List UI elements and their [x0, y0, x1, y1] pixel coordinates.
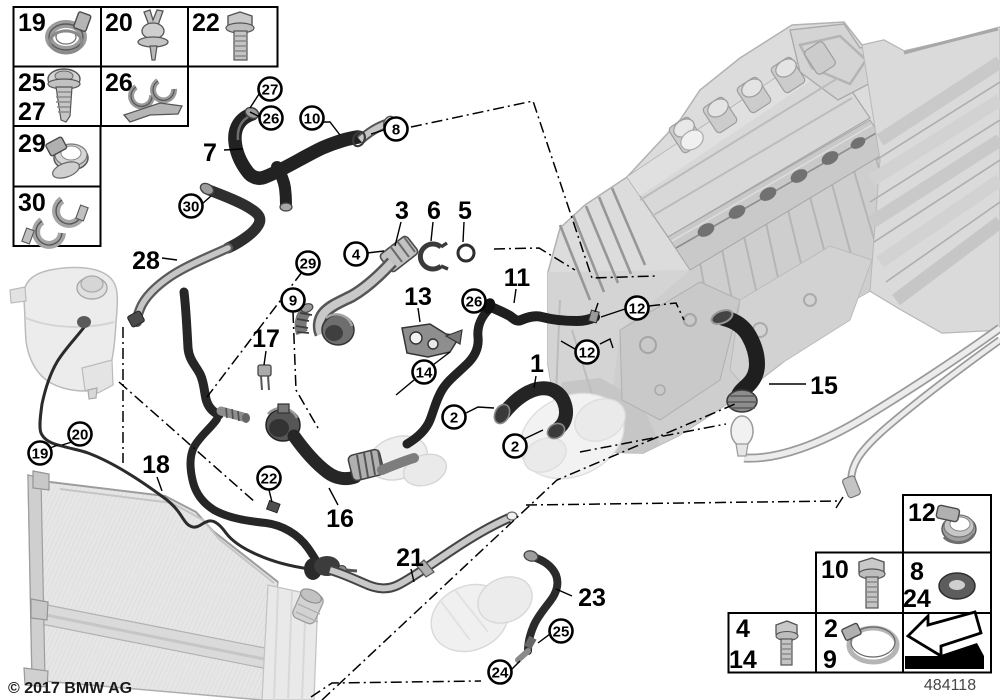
svg-text:23: 23 [578, 584, 606, 612]
svg-text:28: 28 [132, 247, 160, 275]
svg-text:484118: 484118 [924, 677, 976, 694]
svg-text:10: 10 [821, 556, 849, 584]
svg-text:14: 14 [729, 646, 757, 674]
svg-text:2: 2 [450, 410, 458, 427]
svg-text:26: 26 [263, 111, 280, 128]
svg-text:19: 19 [18, 9, 46, 37]
svg-text:30: 30 [183, 199, 200, 216]
svg-text:15: 15 [810, 372, 838, 400]
svg-text:20: 20 [72, 427, 89, 444]
svg-text:22: 22 [261, 471, 278, 488]
svg-text:11: 11 [504, 264, 531, 292]
svg-text:27: 27 [262, 82, 279, 99]
svg-text:30: 30 [18, 189, 46, 217]
svg-text:29: 29 [300, 256, 317, 273]
svg-text:12: 12 [908, 499, 936, 527]
svg-text:5: 5 [458, 197, 472, 225]
svg-text:8: 8 [910, 558, 924, 586]
svg-text:14: 14 [416, 365, 433, 382]
svg-text:9: 9 [289, 293, 297, 310]
svg-text:12: 12 [629, 301, 646, 318]
svg-text:9: 9 [823, 646, 837, 674]
svg-text:24: 24 [492, 665, 509, 682]
svg-text:12: 12 [579, 345, 596, 362]
svg-text:18: 18 [142, 451, 170, 479]
svg-text:20: 20 [105, 9, 133, 37]
svg-text:3: 3 [395, 197, 409, 225]
svg-text:7: 7 [203, 139, 217, 167]
svg-text:4: 4 [352, 247, 361, 264]
svg-text:10: 10 [304, 111, 321, 128]
svg-text:19: 19 [32, 446, 49, 463]
svg-text:2: 2 [511, 439, 519, 456]
svg-text:29: 29 [18, 130, 46, 158]
svg-text:25: 25 [553, 624, 570, 641]
svg-text:16: 16 [326, 505, 354, 533]
svg-text:24: 24 [903, 585, 931, 613]
svg-text:6: 6 [427, 197, 441, 225]
svg-text:21: 21 [396, 544, 424, 572]
svg-text:22: 22 [192, 9, 220, 37]
svg-text:1: 1 [530, 350, 544, 378]
svg-text:2: 2 [824, 615, 838, 643]
svg-text:13: 13 [404, 283, 432, 311]
svg-text:26: 26 [466, 294, 483, 311]
svg-text:© 2017 BMW AG: © 2017 BMW AG [8, 680, 132, 697]
svg-text:8: 8 [392, 122, 400, 139]
svg-text:4: 4 [736, 615, 750, 643]
svg-text:25: 25 [18, 69, 46, 97]
svg-text:27: 27 [18, 98, 46, 126]
svg-text:17: 17 [252, 325, 280, 353]
